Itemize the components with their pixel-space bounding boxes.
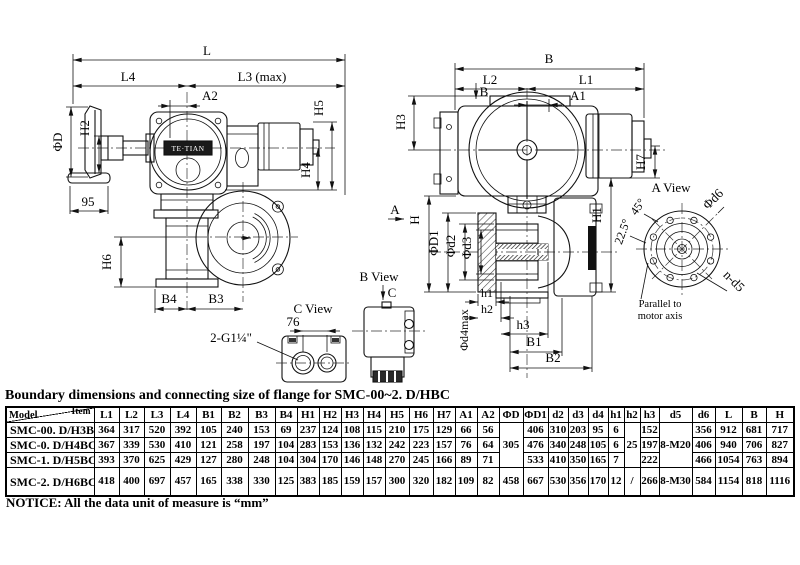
drawing-page: TE·TIAN bbox=[0, 0, 800, 565]
dim-H: H bbox=[407, 215, 422, 224]
value-cell: 339 bbox=[119, 438, 144, 453]
value-cell: 457 bbox=[170, 468, 196, 497]
c-view: C View 76 bbox=[276, 301, 350, 382]
dim-phid3: Φd3 bbox=[459, 237, 474, 260]
dimension-table: ItemModelL1L2L3L4B1B2B3B4H1H2H3H4H5H6H7A… bbox=[5, 406, 795, 497]
dim-n-d5: n-d5 bbox=[720, 267, 747, 294]
dim-L3max: L3 (max) bbox=[238, 69, 287, 84]
value-cell: 410 bbox=[170, 438, 196, 453]
dim-95: 95 bbox=[82, 194, 95, 209]
value-cell: 109 bbox=[455, 468, 477, 497]
table-corner-cell: ItemModel bbox=[6, 407, 94, 423]
dim-B: B bbox=[545, 51, 554, 66]
dim-B2: B2 bbox=[545, 350, 560, 365]
dim-phid4max: Φd4max bbox=[457, 309, 471, 350]
b-view-drawing bbox=[364, 302, 414, 382]
dim-A1: A1 bbox=[570, 88, 586, 103]
a-view-label: A View bbox=[651, 180, 691, 195]
value-cell: 697 bbox=[144, 468, 170, 497]
value-cell: 667 bbox=[523, 468, 548, 497]
dim-h1: h1 bbox=[481, 286, 493, 300]
value-cell: 280 bbox=[221, 453, 248, 468]
c-direction-letter: C bbox=[388, 285, 397, 300]
value-cell: 242 bbox=[385, 438, 409, 453]
value-cell: 466 bbox=[692, 453, 715, 468]
value-cell: 300 bbox=[385, 468, 409, 497]
value-cell: 706 bbox=[742, 438, 766, 453]
value-cell: 127 bbox=[196, 453, 221, 468]
value-cell: 317 bbox=[119, 423, 144, 438]
value-cell: 356 bbox=[568, 468, 588, 497]
a-view-centerlines bbox=[636, 203, 728, 295]
c-view-drawing bbox=[282, 336, 346, 382]
value-cell: 400 bbox=[119, 468, 144, 497]
dim-L: L bbox=[203, 43, 211, 58]
column-header: ΦD1 bbox=[523, 407, 548, 423]
value-cell: 827 bbox=[766, 438, 794, 453]
nameplate-logo: TE·TIAN bbox=[171, 144, 204, 153]
dim-L1: L1 bbox=[579, 72, 593, 87]
parallel-note-line2: motor axis bbox=[638, 311, 683, 322]
value-cell: 125 bbox=[275, 468, 297, 497]
value-cell: 894 bbox=[766, 453, 794, 468]
a-view: A View Φd6 45° 22.5° n-d5 Parallel to mo… bbox=[611, 180, 748, 322]
value-cell: 165 bbox=[196, 468, 221, 497]
column-header: d3 bbox=[568, 407, 588, 423]
value-cell: 912 bbox=[715, 423, 742, 438]
b-direction-letter: B bbox=[480, 84, 489, 99]
value-cell: 146 bbox=[341, 453, 363, 468]
value-cell: 1116 bbox=[766, 468, 794, 497]
dim-H1: H1 bbox=[589, 207, 604, 223]
value-cell: 940 bbox=[715, 438, 742, 453]
value-cell: 283 bbox=[297, 438, 319, 453]
value-cell: 530 bbox=[548, 468, 568, 497]
value-cell: 203 bbox=[568, 423, 588, 438]
value-cell: 210 bbox=[385, 423, 409, 438]
value-cell: 157 bbox=[363, 468, 385, 497]
value-cell: 367 bbox=[94, 438, 119, 453]
value-cell: 476 bbox=[523, 438, 548, 453]
table-title: Boundary dimensions and connecting size … bbox=[5, 388, 450, 404]
column-header: d2 bbox=[548, 407, 568, 423]
mount-bracket-front bbox=[434, 112, 458, 194]
dim-H7: H7 bbox=[633, 154, 648, 170]
column-header: B bbox=[742, 407, 766, 423]
value-cell: 383 bbox=[297, 468, 319, 497]
value-cell: 533 bbox=[523, 453, 548, 468]
column-header: B1 bbox=[196, 407, 221, 423]
column-header: h3 bbox=[640, 407, 659, 423]
parallel-note-line1: Parallel to bbox=[639, 299, 682, 310]
table-header-row: ItemModelL1L2L3L4B1B2B3B4H1H2H3H4H5H6H7A… bbox=[6, 407, 794, 423]
corner-item-label: Item bbox=[72, 408, 91, 418]
value-cell: 6 bbox=[608, 423, 624, 438]
value-cell: 175 bbox=[409, 423, 433, 438]
column-header: B2 bbox=[221, 407, 248, 423]
value-cell: 429 bbox=[170, 453, 196, 468]
value-cell: 350 bbox=[568, 453, 588, 468]
model-cell: SMC-00. D/H3BC bbox=[6, 423, 94, 438]
value-cell: 763 bbox=[742, 453, 766, 468]
value-cell: 393 bbox=[94, 453, 119, 468]
right-view: B L2 L1 A1 B H3 H ΦD1 Φd2 Φd3 h1 h2 h3 B… bbox=[388, 51, 665, 378]
column-header: ΦD bbox=[499, 407, 523, 423]
value-cell: 584 bbox=[692, 468, 715, 497]
dim-h3: h3 bbox=[517, 317, 530, 332]
value-cell: 159 bbox=[341, 468, 363, 497]
model-cell: SMC-1. D/H5BC bbox=[6, 453, 94, 468]
thread-callout: 2-G1¼" bbox=[210, 330, 252, 345]
value-cell: 681 bbox=[742, 423, 766, 438]
value-cell: 157 bbox=[433, 438, 455, 453]
dim-B1: B1 bbox=[526, 334, 541, 349]
value-cell: 104 bbox=[275, 438, 297, 453]
dim-76: 76 bbox=[287, 314, 301, 329]
value-cell: 406 bbox=[523, 423, 548, 438]
value-cell: 406 bbox=[692, 438, 715, 453]
column-header: B4 bbox=[275, 407, 297, 423]
value-cell: 1054 bbox=[715, 453, 742, 468]
value-cell: 320 bbox=[409, 468, 433, 497]
column-header: H3 bbox=[341, 407, 363, 423]
column-header: H4 bbox=[363, 407, 385, 423]
value-cell: 530 bbox=[144, 438, 170, 453]
value-cell: 71 bbox=[477, 453, 499, 468]
value-cell: 105 bbox=[588, 438, 608, 453]
value-cell: 625 bbox=[144, 453, 170, 468]
technical-drawing: TE·TIAN bbox=[0, 0, 800, 390]
value-cell: 104 bbox=[275, 453, 297, 468]
column-header: H bbox=[766, 407, 794, 423]
dim-phid2: Φd2 bbox=[443, 235, 458, 258]
value-cell: 76 bbox=[455, 438, 477, 453]
value-cell: 89 bbox=[455, 453, 477, 468]
column-header: d6 bbox=[692, 407, 715, 423]
value-cell: 717 bbox=[766, 423, 794, 438]
column-header: L3 bbox=[144, 407, 170, 423]
column-header: h2 bbox=[624, 407, 640, 423]
value-cell: 182 bbox=[433, 468, 455, 497]
value-cell: 245 bbox=[409, 453, 433, 468]
dim-L4: L4 bbox=[121, 69, 136, 84]
value-cell: 95 bbox=[588, 423, 608, 438]
corner-model-label: Model bbox=[9, 411, 38, 422]
table-row: SMC-2. D/H6BC418400697457165338330125383… bbox=[6, 468, 794, 497]
value-cell: 237 bbox=[297, 423, 319, 438]
b-view: B View C bbox=[352, 269, 428, 382]
column-header: A1 bbox=[455, 407, 477, 423]
value-cell: 410 bbox=[548, 453, 568, 468]
handwheel-side bbox=[68, 106, 154, 183]
value-cell: 66 bbox=[455, 423, 477, 438]
dim-B4: B4 bbox=[161, 291, 177, 306]
dim-A2: A2 bbox=[202, 88, 218, 103]
value-cell: 12 bbox=[608, 468, 624, 497]
value-cell: 69 bbox=[275, 423, 297, 438]
a-direction-letter: A bbox=[390, 202, 400, 217]
value-cell: 356 bbox=[692, 423, 715, 438]
value-cell: 132 bbox=[363, 438, 385, 453]
value-cell: 108 bbox=[341, 423, 363, 438]
value-cell: 124 bbox=[319, 423, 341, 438]
value-cell: 7 bbox=[608, 453, 624, 468]
value-cell: 56 bbox=[477, 423, 499, 438]
model-cell: SMC-0. D/H4BC bbox=[6, 438, 94, 453]
column-header: d4 bbox=[588, 407, 608, 423]
column-header: H2 bbox=[319, 407, 341, 423]
value-cell: 338 bbox=[221, 468, 248, 497]
value-cell: 392 bbox=[170, 423, 196, 438]
value-cell: 1154 bbox=[715, 468, 742, 497]
column-header: H6 bbox=[409, 407, 433, 423]
column-header: A2 bbox=[477, 407, 499, 423]
value-cell: 170 bbox=[319, 453, 341, 468]
b-view-label: B View bbox=[359, 269, 399, 284]
value-cell: 223 bbox=[409, 438, 433, 453]
value-cell: 418 bbox=[94, 468, 119, 497]
column-header: L2 bbox=[119, 407, 144, 423]
value-cell: 82 bbox=[477, 468, 499, 497]
dim-H3: H3 bbox=[393, 114, 408, 130]
value-cell: 818 bbox=[742, 468, 766, 497]
value-cell: 64 bbox=[477, 438, 499, 453]
value-cell: 153 bbox=[248, 423, 275, 438]
value-cell: 458 bbox=[499, 468, 523, 497]
dim-H6: H6 bbox=[99, 254, 114, 270]
value-cell: / bbox=[624, 468, 640, 497]
value-cell: 258 bbox=[221, 438, 248, 453]
value-cell: 364 bbox=[94, 423, 119, 438]
value-cell: 152 bbox=[640, 423, 659, 438]
column-header: d5 bbox=[659, 407, 692, 423]
value-cell: 170 bbox=[588, 468, 608, 497]
value-cell: 305 bbox=[499, 423, 523, 468]
value-cell: 340 bbox=[548, 438, 568, 453]
value-cell: 166 bbox=[433, 453, 455, 468]
value-cell: 185 bbox=[319, 468, 341, 497]
table-row: SMC-00. D/H3BC36431752039210524015369237… bbox=[6, 423, 794, 438]
value-cell: 148 bbox=[363, 453, 385, 468]
value-cell: 520 bbox=[144, 423, 170, 438]
actuator-body-side bbox=[150, 112, 258, 194]
value-cell: 222 bbox=[640, 453, 659, 468]
value-cell: 8-M30 bbox=[659, 468, 692, 497]
value-cell: 197 bbox=[248, 438, 275, 453]
dim-22-5deg: 22.5° bbox=[611, 217, 633, 246]
value-cell: 197 bbox=[640, 438, 659, 453]
dim-phiD1: ΦD1 bbox=[426, 230, 441, 255]
column-header: L4 bbox=[170, 407, 196, 423]
value-cell: 304 bbox=[297, 453, 319, 468]
value-cell: 248 bbox=[248, 453, 275, 468]
flange-section bbox=[478, 196, 602, 303]
value-cell: 310 bbox=[548, 423, 568, 438]
value-cell: 121 bbox=[196, 438, 221, 453]
column-header: H5 bbox=[385, 407, 409, 423]
value-cell: 240 bbox=[221, 423, 248, 438]
column-header: H7 bbox=[433, 407, 455, 423]
dim-H2: H2 bbox=[77, 120, 92, 136]
value-cell: 6 bbox=[608, 438, 624, 453]
column-header: H1 bbox=[297, 407, 319, 423]
value-cell: 8-M20 bbox=[659, 423, 692, 468]
value-cell: 370 bbox=[119, 453, 144, 468]
column-header: L1 bbox=[94, 407, 119, 423]
notice-text: NOTICE: All the data unit of measure is … bbox=[6, 495, 269, 511]
dim-phiD: ΦD bbox=[50, 133, 65, 152]
column-header: h1 bbox=[608, 407, 624, 423]
value-cell: 330 bbox=[248, 468, 275, 497]
dim-H5: H5 bbox=[311, 100, 326, 116]
value-cell: 25 bbox=[624, 423, 640, 468]
value-cell: 266 bbox=[640, 468, 659, 497]
value-cell: 270 bbox=[385, 453, 409, 468]
value-cell: 129 bbox=[433, 423, 455, 438]
dim-H4: H4 bbox=[298, 162, 313, 178]
value-cell: 248 bbox=[568, 438, 588, 453]
column-header: L bbox=[715, 407, 742, 423]
value-cell: 105 bbox=[196, 423, 221, 438]
model-cell: SMC-2. D/H6BC bbox=[6, 468, 94, 497]
dim-h2: h2 bbox=[481, 302, 493, 316]
dim-B3: B3 bbox=[208, 291, 223, 306]
column-header: B3 bbox=[248, 407, 275, 423]
value-cell: 136 bbox=[341, 438, 363, 453]
value-cell: 165 bbox=[588, 453, 608, 468]
value-cell: 115 bbox=[363, 423, 385, 438]
value-cell: 153 bbox=[319, 438, 341, 453]
